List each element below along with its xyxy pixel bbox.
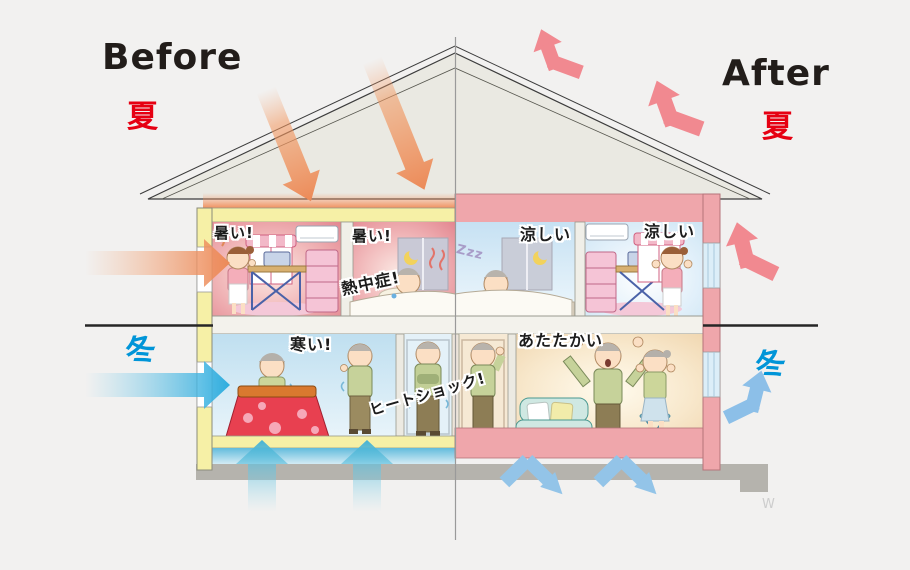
wall-partition-low1 bbox=[396, 334, 404, 436]
ceiling-heat-glow bbox=[203, 193, 455, 208]
wall-after-right bbox=[703, 194, 720, 470]
callout-warm: あたたかい bbox=[518, 333, 603, 349]
callout-cool-room2: 涼しい bbox=[644, 224, 695, 240]
callout-cool-bedroom: 涼しい bbox=[520, 227, 571, 243]
wall-partition-low2 bbox=[508, 334, 516, 436]
insulation-before-after-diagram: Before After 夏 夏 冬 冬 暑い! 暑い! 熱中症! 涼しい 涼し… bbox=[0, 0, 910, 570]
after-heading: After bbox=[722, 56, 830, 92]
heat-arrow-wall-left bbox=[85, 239, 230, 287]
before-heading: Before bbox=[102, 40, 242, 76]
floor-before-thin bbox=[203, 436, 455, 448]
bedroom-window-after bbox=[502, 238, 552, 290]
foundation-step bbox=[740, 480, 768, 492]
reflect-arrow-wall-summer bbox=[721, 215, 782, 290]
ceiling-before-thin bbox=[203, 208, 455, 222]
floor-after-insulated bbox=[455, 428, 712, 458]
callout-hot-bedroom: 暑い! bbox=[352, 229, 392, 244]
wall-partition-up2 bbox=[575, 222, 585, 316]
cold-arrow-wall-left bbox=[85, 361, 230, 409]
floor-slab bbox=[203, 316, 712, 334]
callout-cold: 寒い! bbox=[290, 337, 332, 353]
callout-hot-room1: 暑い! bbox=[214, 226, 254, 241]
ceiling-after-insulated bbox=[455, 194, 720, 224]
watermark: W bbox=[762, 498, 775, 511]
summer-label-left: 夏 bbox=[127, 102, 158, 133]
summer-label-right: 夏 bbox=[762, 112, 793, 143]
foundation bbox=[196, 464, 768, 480]
